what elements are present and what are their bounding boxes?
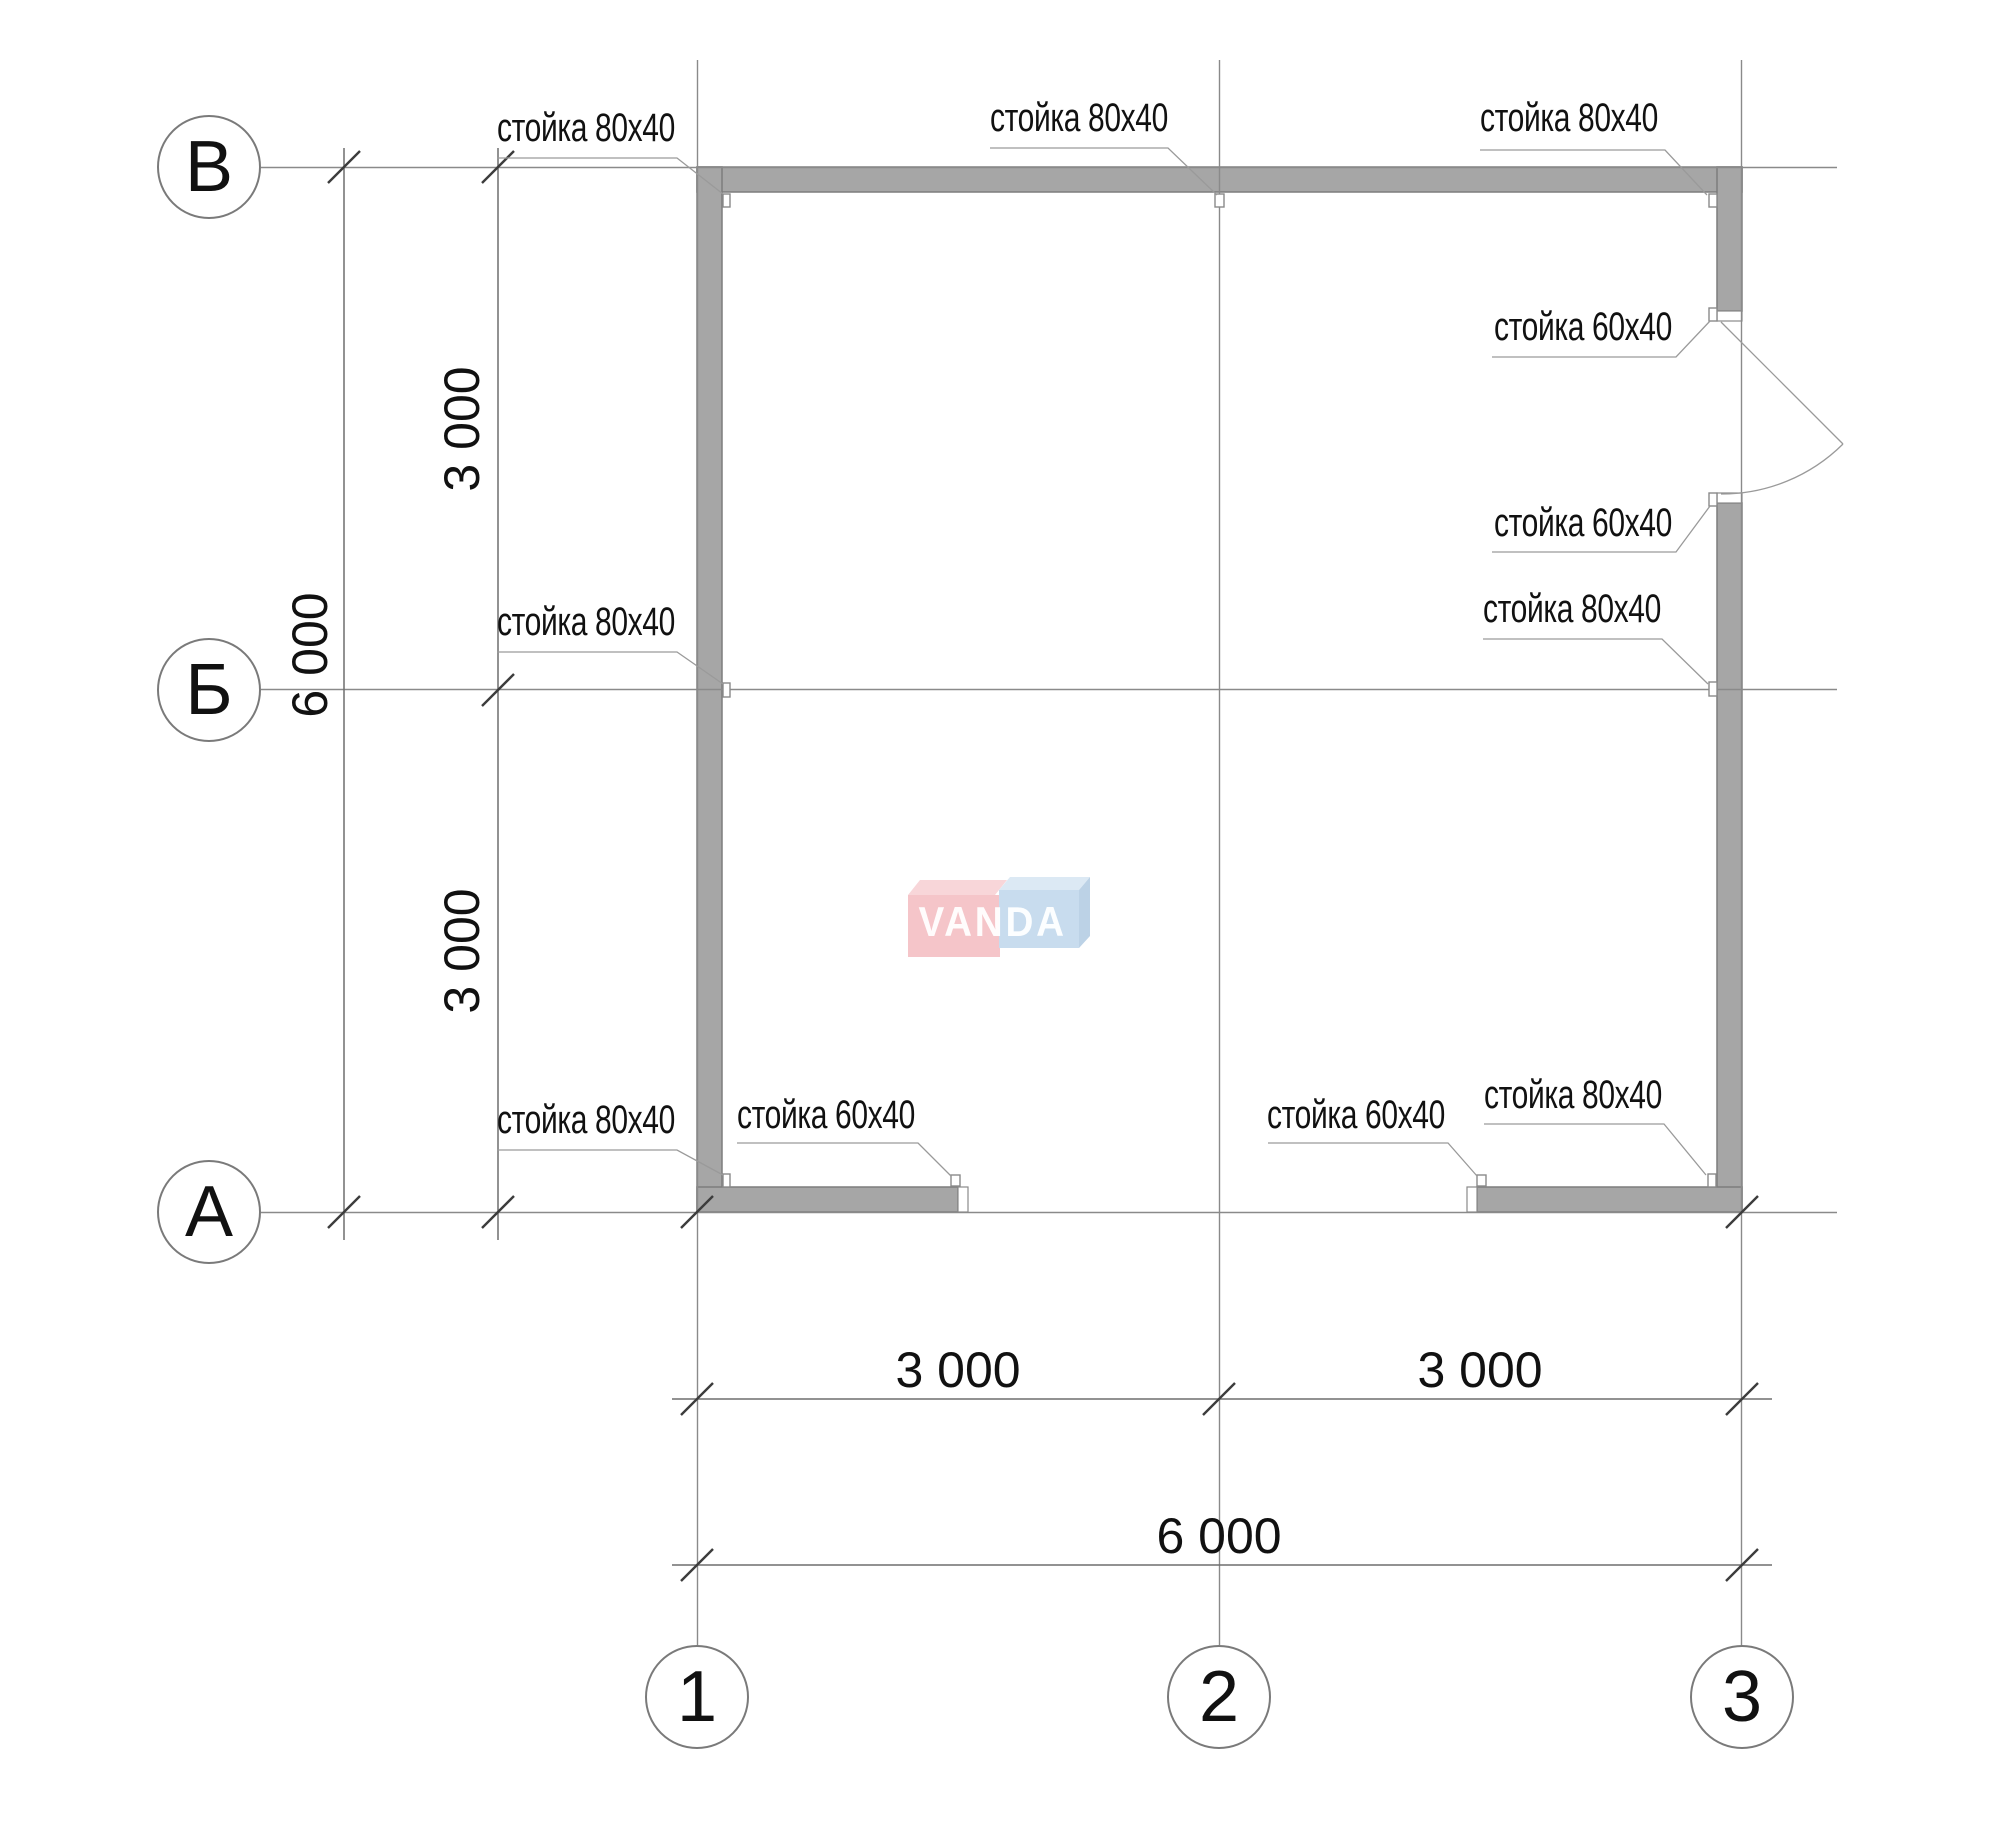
- stud-label-door-lower: стойка 60x40: [1494, 503, 1672, 543]
- stud-label-top-left: стойка 80x40: [497, 108, 675, 148]
- axis-letter-a: А: [185, 1176, 233, 1248]
- stud-label-middle-left: стойка 80x40: [497, 602, 675, 642]
- door-arc: [1721, 444, 1843, 494]
- post-middle-left: [723, 683, 730, 697]
- cap-door-top: [1717, 311, 1742, 321]
- dim-left-total: 6 000: [285, 592, 335, 717]
- cap-bottom-left-opening: [958, 1187, 968, 1212]
- dim-left-span-2: 3 000: [437, 888, 487, 1013]
- stud-label-door-upper: стойка 60x40: [1494, 307, 1672, 347]
- wall-right-lower: [1717, 503, 1742, 1212]
- wall-bottom-left-segment: [697, 1187, 958, 1212]
- dim-bottom-span-1: 3 000: [895, 1345, 1020, 1395]
- stud-label-bottom-left: стойка 80x40: [497, 1100, 675, 1140]
- post-middle-right: [1709, 682, 1717, 696]
- post-top-middle: [1215, 194, 1224, 207]
- axis-letter-b: Б: [185, 654, 232, 726]
- door-swing: [1721, 322, 1843, 494]
- stud-label-top-right: стойка 80x40: [1480, 98, 1658, 138]
- post-door-lower: [1709, 493, 1717, 506]
- axis-circle-a: А: [157, 1160, 261, 1264]
- plan-linework: [0, 0, 2000, 1834]
- stud-label-top-middle: стойка 80x40: [990, 98, 1168, 138]
- post-door-upper: [1709, 308, 1717, 321]
- stud-label-bottom-left-opening: стойка 60x40: [737, 1095, 915, 1135]
- dimension-ticks: [328, 151, 1758, 1581]
- door-leaf: [1721, 322, 1843, 444]
- axis-number-3: 3: [1722, 1661, 1762, 1733]
- dim-left-span-1: 3 000: [437, 366, 487, 491]
- dimension-lines: [344, 148, 1772, 1565]
- axis-letter-v: В: [185, 131, 233, 203]
- cap-bottom-right-opening: [1467, 1187, 1477, 1212]
- dim-bottom-span-2: 3 000: [1417, 1345, 1542, 1395]
- stud-label-bottom-right-opening: стойка 60x40: [1267, 1095, 1445, 1135]
- axis-number-2: 2: [1199, 1661, 1239, 1733]
- axis-number-1: 1: [677, 1661, 717, 1733]
- cap-door-bottom: [1717, 493, 1742, 503]
- stud-label-bottom-right: стойка 80x40: [1484, 1075, 1662, 1115]
- axis-circle-v: В: [157, 115, 261, 219]
- post-top-left: [723, 194, 730, 207]
- post-top-right: [1709, 194, 1717, 207]
- axis-circle-b: Б: [157, 638, 261, 742]
- post-bottom-right-opening: [1477, 1175, 1486, 1186]
- axis-circle-3: 3: [1690, 1645, 1794, 1749]
- post-bottom-left-opening: [951, 1175, 960, 1186]
- axis-circle-1: 1: [645, 1645, 749, 1749]
- floor-plan-canvas: VANDA: [0, 0, 2000, 1834]
- label-leaders: [497, 148, 1710, 1176]
- axis-circle-2: 2: [1167, 1645, 1271, 1749]
- wall-bottom-right-segment: [1477, 1187, 1742, 1212]
- dim-bottom-total: 6 000: [1156, 1511, 1281, 1561]
- post-bottom-right: [1708, 1174, 1716, 1187]
- wall-right-upper: [1717, 167, 1742, 311]
- stud-label-middle-right: стойка 80x40: [1483, 589, 1661, 629]
- post-bottom-left: [723, 1174, 730, 1187]
